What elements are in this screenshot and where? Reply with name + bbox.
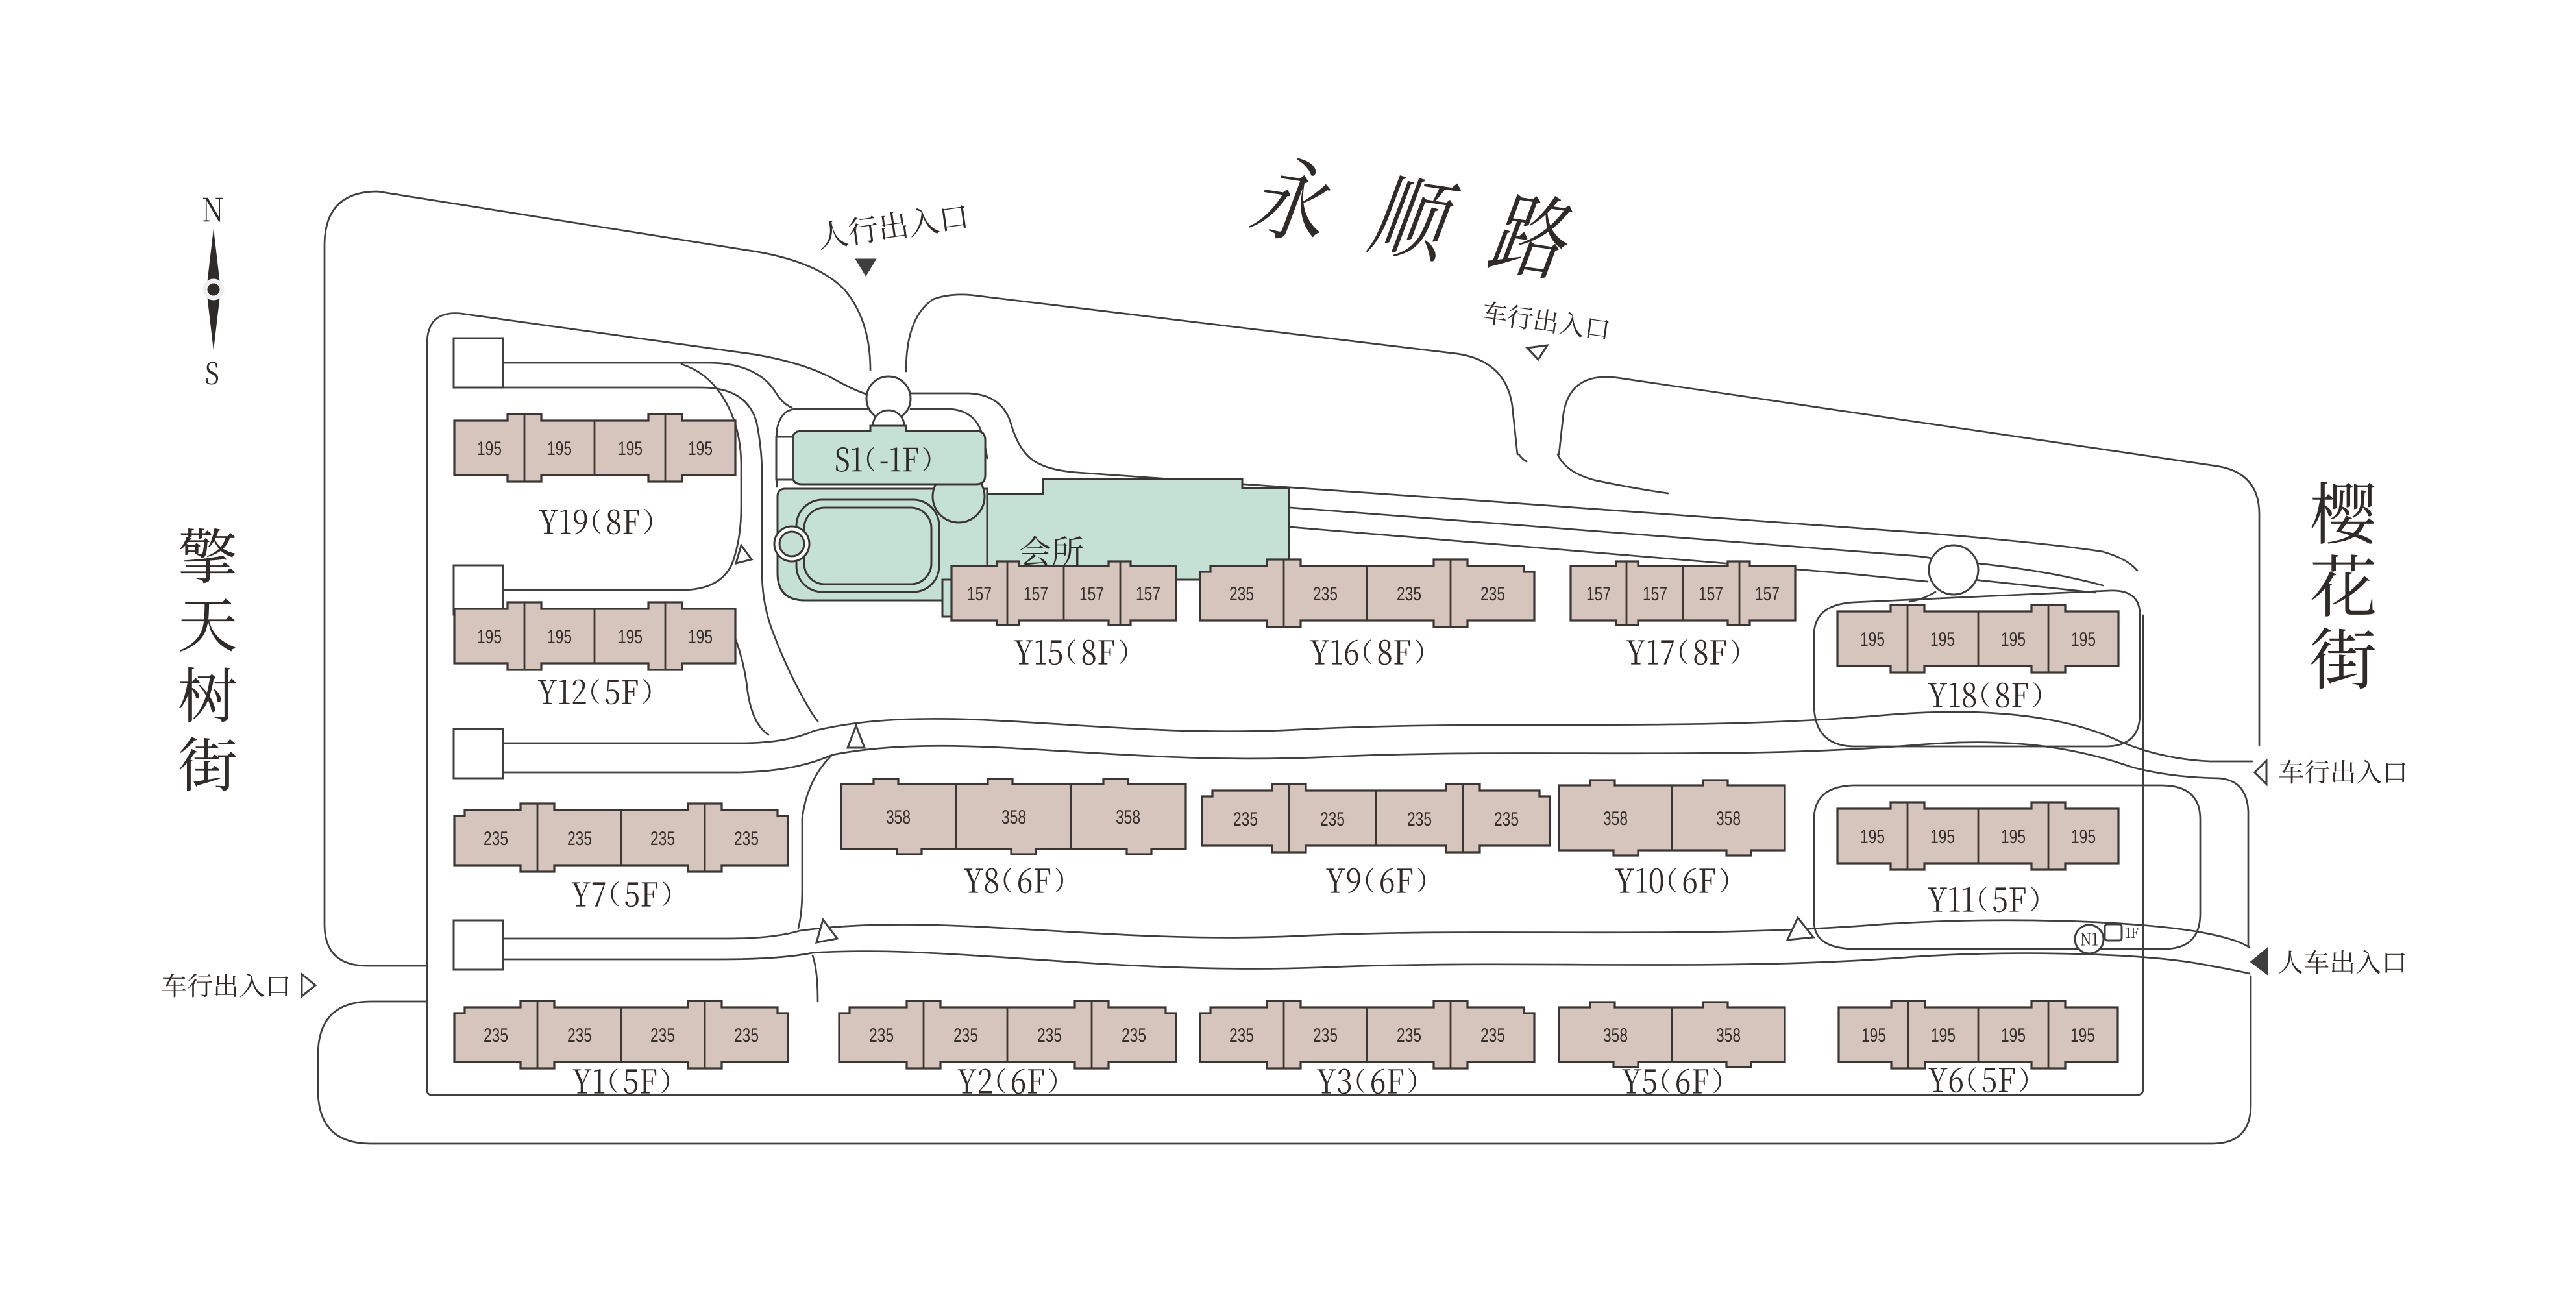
svg-text:195: 195: [547, 438, 572, 460]
svg-text:157: 157: [967, 584, 992, 605]
svg-text:195: 195: [1931, 1025, 1956, 1046]
svg-text:195: 195: [1861, 1025, 1886, 1046]
svg-text:195: 195: [1930, 629, 1955, 650]
svg-text:358: 358: [1603, 1025, 1628, 1046]
svg-text:157: 157: [1699, 584, 1723, 605]
svg-text:235: 235: [650, 828, 675, 850]
svg-text:235: 235: [1494, 809, 1519, 830]
svg-text:235: 235: [1229, 584, 1254, 605]
svg-text:195: 195: [1930, 826, 1955, 848]
svg-text:235: 235: [1480, 1025, 1505, 1046]
svg-text:157: 157: [1586, 584, 1611, 605]
svg-text:235: 235: [567, 828, 592, 850]
svg-text:358: 358: [1001, 807, 1026, 828]
svg-text:157: 157: [1755, 584, 1780, 605]
svg-text:235: 235: [567, 1025, 592, 1046]
svg-text:235: 235: [734, 828, 759, 850]
svg-text:235: 235: [734, 1025, 759, 1046]
svg-text:195: 195: [547, 626, 572, 648]
svg-text:195: 195: [618, 626, 643, 648]
svg-text:358: 358: [1603, 808, 1628, 830]
svg-text:235: 235: [1233, 809, 1258, 830]
svg-text:157: 157: [1079, 584, 1104, 605]
svg-text:235: 235: [1480, 584, 1505, 605]
svg-text:195: 195: [2071, 629, 2096, 650]
svg-text:157: 157: [1136, 584, 1160, 605]
svg-text:235: 235: [869, 1025, 894, 1046]
svg-text:195: 195: [477, 626, 502, 648]
svg-text:235: 235: [1122, 1025, 1146, 1046]
svg-text:157: 157: [1024, 584, 1048, 605]
svg-text:358: 358: [1716, 1025, 1741, 1046]
svg-text:195: 195: [1860, 826, 1885, 848]
svg-text:195: 195: [688, 438, 713, 460]
svg-text:235: 235: [1397, 584, 1421, 605]
svg-text:235: 235: [1320, 809, 1345, 830]
svg-text:157: 157: [1643, 584, 1667, 605]
svg-text:195: 195: [618, 438, 643, 460]
svg-text:195: 195: [2001, 826, 2026, 848]
svg-text:358: 358: [1116, 807, 1140, 828]
svg-text:358: 358: [886, 807, 911, 828]
svg-text:235: 235: [1407, 809, 1432, 830]
svg-text:195: 195: [1860, 629, 1885, 650]
svg-text:195: 195: [2071, 826, 2096, 848]
svg-text:195: 195: [2070, 1025, 2095, 1046]
svg-text:358: 358: [1716, 808, 1741, 830]
svg-text:235: 235: [1397, 1025, 1421, 1046]
svg-text:195: 195: [2001, 1025, 2026, 1046]
svg-text:235: 235: [1313, 584, 1338, 605]
svg-text:195: 195: [2001, 629, 2026, 650]
svg-text:235: 235: [484, 1025, 508, 1046]
svg-text:235: 235: [953, 1025, 978, 1046]
svg-text:195: 195: [477, 438, 502, 460]
svg-text:235: 235: [1229, 1025, 1254, 1046]
svg-text:195: 195: [688, 626, 713, 648]
svg-text:235: 235: [650, 1025, 675, 1046]
svg-text:235: 235: [1313, 1025, 1338, 1046]
svg-text:235: 235: [1037, 1025, 1062, 1046]
svg-text:235: 235: [484, 828, 508, 850]
